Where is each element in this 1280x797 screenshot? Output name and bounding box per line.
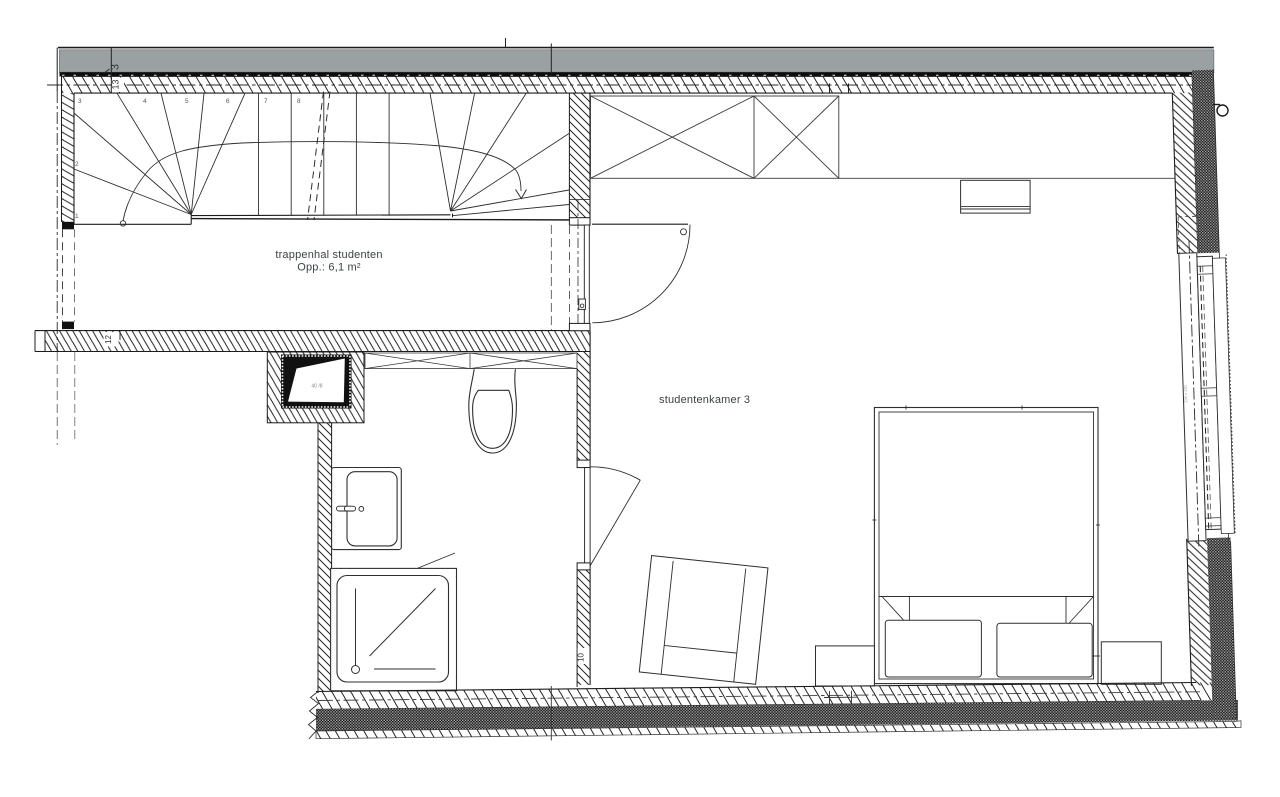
svg-text:6: 6 [226, 98, 230, 105]
svg-text:235 x 110: 235 x 110 [1183, 385, 1189, 403]
svg-text:Opp.: 6,1 m²: Opp.: 6,1 m² [297, 262, 361, 274]
svg-text:10: 10 [577, 653, 586, 662]
svg-text:1: 1 [75, 213, 79, 220]
svg-text:40 /8: 40 /8 [311, 384, 322, 390]
svg-text:8: 8 [297, 98, 301, 105]
svg-text:5: 5 [185, 98, 189, 105]
svg-text:4: 4 [143, 98, 147, 105]
svg-text:7: 7 [264, 98, 268, 105]
svg-text:13: 13 [111, 79, 121, 89]
svg-text:studentenkamer 3: studentenkamer 3 [659, 394, 750, 406]
svg-text:3: 3 [110, 64, 122, 70]
svg-text:12: 12 [104, 335, 113, 344]
svg-text:2: 2 [75, 161, 79, 168]
svg-text:trappenhal studenten: trappenhal studenten [275, 249, 382, 261]
svg-text:3: 3 [78, 98, 82, 105]
